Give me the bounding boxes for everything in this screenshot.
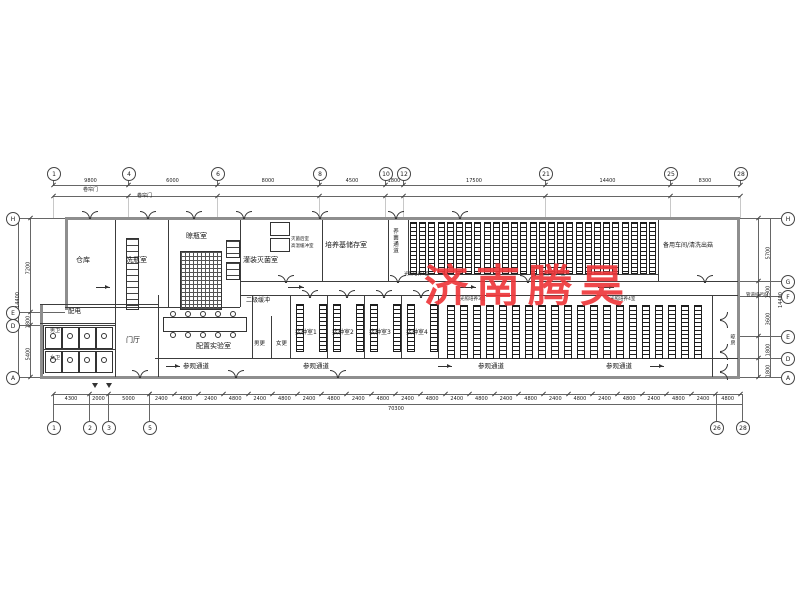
grid-bubble: 21 (539, 167, 553, 181)
wall (364, 295, 365, 358)
grid-bubble: 2 (83, 421, 97, 435)
wall (43, 349, 115, 350)
grid-bubble: E (6, 306, 20, 320)
dim-value: 4800 (721, 396, 734, 402)
stool (185, 332, 191, 338)
dim-value: 4800 (229, 396, 242, 402)
door-icon (339, 290, 355, 298)
wall (290, 295, 291, 358)
room-label-lobby: 门厅 (126, 337, 140, 345)
bubble-stem (716, 394, 717, 421)
bubble-stem (740, 218, 781, 219)
clean-bench (407, 304, 415, 352)
dim-value: 2400 (450, 396, 463, 402)
level-mark-icon (106, 383, 112, 391)
room-label-fungus-corridor: 养菌通道 (392, 228, 398, 254)
annotation-rollup-door-1: 卷帘门 (83, 188, 98, 194)
room-label-inoculation-4: 接种室4 (406, 330, 428, 337)
wall (737, 217, 740, 379)
grid-line (385, 196, 386, 218)
grid-bubble: 25 (664, 167, 678, 181)
grid-line (217, 196, 218, 218)
wall (168, 220, 169, 307)
wall (658, 220, 659, 281)
grid-line (53, 196, 54, 218)
stool (170, 332, 176, 338)
dim-line (53, 196, 740, 197)
wall (240, 220, 241, 307)
wall (40, 323, 115, 324)
dim-value: 9800 (84, 178, 97, 184)
room-label-womens-toilet: 女卫 (50, 356, 60, 362)
corridor-label-visiting-4: 参观通道 (606, 363, 632, 370)
dim-value: 8300 (699, 178, 712, 184)
door-icon (82, 211, 98, 219)
sterilizer (226, 240, 240, 258)
wall (388, 220, 389, 281)
dim-value: 2400 (352, 396, 365, 402)
rack (694, 305, 702, 359)
bubble-stem (108, 394, 109, 421)
sterilizer (226, 262, 240, 280)
door-icon (140, 211, 156, 219)
dim-value: 2400 (401, 396, 414, 402)
dim-value: 4800 (377, 396, 390, 402)
clean-bench (393, 304, 401, 352)
clean-bench (356, 304, 364, 352)
room-label-inoculation-2: 接种室2 (332, 330, 354, 337)
door-icon (452, 211, 468, 219)
stool (230, 332, 236, 338)
bubble-stem (740, 358, 781, 359)
bubble-stem (740, 281, 781, 282)
door-icon (720, 344, 728, 360)
stool (230, 311, 236, 317)
dim-value: 5700 (765, 246, 771, 259)
door-icon (312, 211, 328, 219)
grid-line (740, 196, 741, 218)
clean-bench (296, 304, 304, 352)
dim-tick (738, 183, 743, 188)
dim-value: 2400 (549, 396, 562, 402)
dim-value: 1800 (765, 344, 771, 357)
watermark: 济南腾昊 (424, 250, 632, 314)
clean-bench (333, 304, 341, 352)
bubble-stem (740, 336, 781, 337)
rack (655, 305, 663, 359)
dim-total: 70300 (388, 406, 404, 412)
room-label-spare-workshop: 备用车间/清洗出菇 (663, 243, 713, 250)
dim-value: 2400 (303, 396, 316, 402)
dim-total: 14400 (15, 292, 21, 308)
drying-rack-area (180, 251, 222, 310)
dim-value: 4300 (65, 396, 78, 402)
corridor-label-visiting-1: 参观通道 (183, 363, 209, 370)
grid-bubble: A (6, 371, 20, 385)
door-icon (376, 290, 392, 298)
autoclave (270, 238, 290, 252)
room-label-secondary-buffer: 二级缓冲 (246, 298, 270, 305)
dim-value: 1800 (765, 364, 771, 377)
bubble-stem (53, 394, 54, 421)
autoclave (270, 222, 290, 236)
toilet-fixture (101, 357, 107, 363)
dim-value: 8000 (262, 178, 275, 184)
lab-bench (163, 317, 247, 332)
dim-value: 4800 (327, 396, 340, 402)
bubble-stem (149, 394, 150, 421)
grid-bubble: 10 (379, 167, 393, 181)
dim-line (53, 404, 742, 405)
dim-value: 2400 (253, 396, 266, 402)
room-label-drying-room: 晾房 (729, 334, 735, 346)
dim-value: 7200 (25, 262, 31, 275)
wall (322, 220, 323, 281)
room-label-inoculation-1: 接种室1 (295, 330, 317, 337)
floor-plan: 济南腾昊 仓库 洗瓶室 晾瓶室 灌装灭菌室 灭菌后室 高温缓冲室 培养基储存室 … (0, 0, 800, 600)
grid-bubble: H (781, 212, 795, 226)
wall (271, 316, 272, 358)
dim-value: 4800 (426, 396, 439, 402)
door-icon (302, 290, 318, 298)
grid-line (128, 196, 129, 218)
grid-line (545, 196, 546, 218)
stool (215, 332, 221, 338)
dim-line (53, 394, 742, 395)
grid-bubble: G (781, 275, 795, 289)
wall (158, 295, 159, 377)
level-mark-icon (92, 383, 98, 391)
dim-value: 2000 (92, 396, 105, 402)
direction-arrow (438, 366, 452, 367)
door-icon (278, 275, 294, 283)
ladder (126, 238, 139, 310)
dim-value: 4800 (475, 396, 488, 402)
room-label-bottle-washing: 洗瓶室 (126, 257, 147, 265)
dim-line (53, 185, 740, 186)
wall (401, 295, 402, 358)
rack (642, 305, 650, 359)
wall (40, 304, 158, 305)
wall (115, 304, 116, 377)
note-high-temp-buffer: 高温缓冲室 (291, 245, 314, 250)
annotation-rollup-door-2: 卷帘门 (137, 194, 152, 200)
clean-bench (319, 304, 327, 352)
door-icon (388, 211, 404, 219)
door-icon (236, 211, 252, 219)
door-icon (228, 370, 244, 378)
stool (200, 332, 206, 338)
dim-value: 4800 (623, 396, 636, 402)
bubble-stem (89, 394, 90, 421)
annotation-drain-outlet: 管道排污口 (746, 294, 769, 299)
bubble-stem (19, 218, 65, 219)
dim-value: 4800 (574, 396, 587, 402)
door-icon (330, 370, 346, 378)
room-label-medium-storage: 培养基储存室 (325, 242, 367, 250)
dim-value: 6000 (166, 178, 179, 184)
dim-value: 2400 (598, 396, 611, 402)
door-icon (697, 275, 713, 283)
wall (43, 325, 115, 326)
dim-value: 4800 (524, 396, 537, 402)
rack (649, 222, 656, 274)
dim-value: 2400 (500, 396, 513, 402)
dim-value: 5000 (122, 396, 135, 402)
direction-arrow (288, 287, 304, 288)
grid-bubble: 4 (122, 167, 136, 181)
dim-value: 2400 (204, 396, 217, 402)
bubble-stem (742, 394, 743, 421)
bubble-stem (740, 377, 781, 378)
dim-value: 2400 (697, 396, 710, 402)
direction-arrow (96, 287, 110, 288)
corridor-label-visiting-3: 参观通道 (478, 363, 504, 370)
room-label-mens-changing: 男更 (254, 341, 265, 347)
grid-line (670, 196, 671, 218)
dim-value: 17500 (466, 178, 482, 184)
note-sterilize-after: 灭菌后室 (291, 238, 309, 243)
room-label-mens-toilet: 男卫 (50, 329, 60, 335)
grid-bubble: 28 (736, 421, 750, 435)
grid-bubble: D (6, 319, 20, 333)
grid-bubble: 3 (102, 421, 116, 435)
grid-bubble: 12 (397, 167, 411, 181)
room-label-warehouse: 仓库 (76, 257, 90, 265)
grid-bubble: 26 (710, 421, 724, 435)
room-label-womens-changing: 女更 (276, 341, 287, 347)
grid-bubble: H (6, 212, 20, 226)
stool (200, 311, 206, 317)
direction-arrow (650, 366, 664, 367)
toilet-fixture (101, 333, 107, 339)
dim-value: 14400 (600, 178, 616, 184)
toilet-fixture (67, 357, 73, 363)
rack (681, 305, 689, 359)
dim-value: 5400 (25, 348, 31, 361)
rack (640, 222, 647, 274)
corridor-label-visiting-2: 参观通道 (303, 363, 329, 370)
direction-arrow (166, 366, 180, 367)
wall (43, 325, 44, 374)
door-icon (720, 312, 728, 328)
stool (215, 311, 221, 317)
grid-bubble: 6 (211, 167, 225, 181)
room-label-bottle-drying: 晾瓶室 (186, 233, 207, 241)
grid-bubble: D (781, 352, 795, 366)
door-icon (720, 364, 728, 380)
room-label-filling-sterilizing: 灌装灭菌室 (243, 257, 278, 265)
toilet-fixture (67, 333, 73, 339)
grid-bubble: A (781, 371, 795, 385)
wall (115, 220, 116, 307)
dim-value: 3600 (765, 313, 771, 326)
room-label-power-distribution: 配电 (68, 308, 81, 315)
dim-value: 2400 (647, 396, 660, 402)
wall (408, 220, 409, 274)
rack (668, 305, 676, 359)
dim-value: 1800 (25, 315, 31, 328)
grid-bubble: 8 (313, 167, 327, 181)
door-icon (132, 370, 148, 378)
toilet-fixture (84, 333, 90, 339)
dim-value: 4800 (278, 396, 291, 402)
dim-value: 4800 (180, 396, 193, 402)
dim-value: 4800 (672, 396, 685, 402)
grid-bubble: 1 (47, 167, 61, 181)
rack (410, 222, 417, 274)
grid-bubble: 5 (143, 421, 157, 435)
wall (327, 295, 328, 358)
room-label-prep-lab: 配置实验室 (196, 343, 231, 351)
door-icon (186, 211, 202, 219)
grid-bubble: 28 (734, 167, 748, 181)
stool (185, 311, 191, 317)
room-label-inoculation-3: 接种室3 (369, 330, 391, 337)
stool (170, 311, 176, 317)
grid-bubble: F (781, 290, 795, 304)
clean-bench (370, 304, 378, 352)
wall (65, 217, 68, 310)
dim-value: 4500 (346, 178, 359, 184)
toilet-fixture (84, 357, 90, 363)
wall (712, 295, 713, 377)
grid-bubble: E (781, 330, 795, 344)
grid-bubble: 1 (47, 421, 61, 435)
dim-value: 2400 (155, 396, 168, 402)
